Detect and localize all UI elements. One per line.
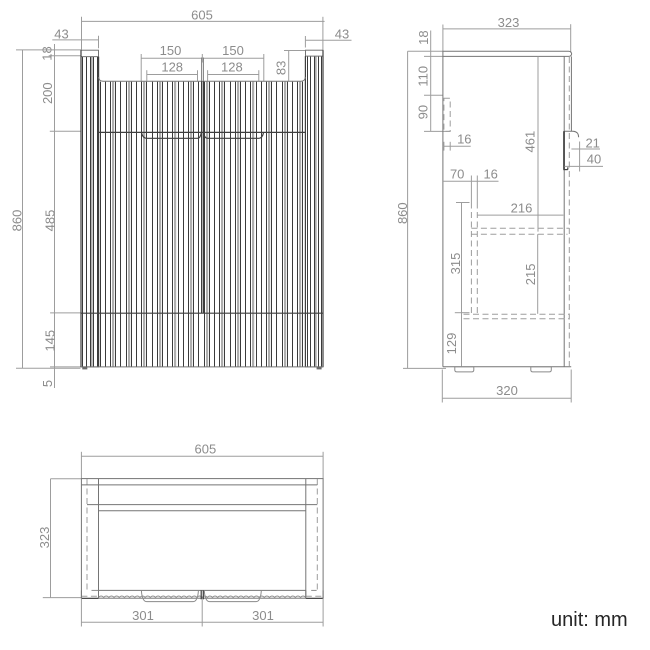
svg-text:128: 128 — [221, 59, 243, 74]
svg-text:83: 83 — [273, 61, 288, 75]
svg-text:605: 605 — [195, 442, 217, 457]
svg-text:90: 90 — [415, 105, 430, 119]
svg-text:323: 323 — [498, 15, 520, 30]
svg-text:5: 5 — [40, 380, 55, 387]
svg-text:150: 150 — [222, 43, 244, 58]
svg-text:485: 485 — [43, 210, 58, 232]
svg-text:860: 860 — [10, 210, 25, 232]
svg-text:70: 70 — [450, 166, 464, 181]
svg-text:18: 18 — [416, 30, 431, 44]
svg-text:129: 129 — [444, 333, 459, 355]
svg-text:315: 315 — [448, 253, 463, 275]
svg-text:605: 605 — [191, 7, 213, 22]
svg-text:unit: mm: unit: mm — [551, 609, 628, 631]
svg-text:320: 320 — [496, 383, 518, 398]
svg-text:16: 16 — [483, 166, 497, 181]
svg-text:40: 40 — [587, 151, 601, 166]
svg-text:150: 150 — [160, 43, 182, 58]
svg-text:21: 21 — [585, 136, 599, 151]
svg-text:200: 200 — [40, 82, 55, 104]
svg-text:110: 110 — [415, 66, 430, 87]
svg-text:215: 215 — [523, 264, 538, 286]
svg-text:216: 216 — [511, 201, 533, 216]
svg-text:43: 43 — [54, 27, 68, 42]
svg-text:461: 461 — [522, 131, 537, 153]
svg-text:860: 860 — [395, 202, 410, 224]
svg-text:128: 128 — [161, 59, 183, 74]
svg-text:18: 18 — [40, 46, 55, 60]
svg-text:16: 16 — [457, 132, 471, 147]
svg-text:323: 323 — [37, 527, 52, 549]
svg-text:145: 145 — [43, 330, 58, 352]
svg-text:301: 301 — [132, 608, 154, 623]
svg-text:43: 43 — [335, 27, 349, 42]
svg-text:301: 301 — [252, 608, 274, 623]
